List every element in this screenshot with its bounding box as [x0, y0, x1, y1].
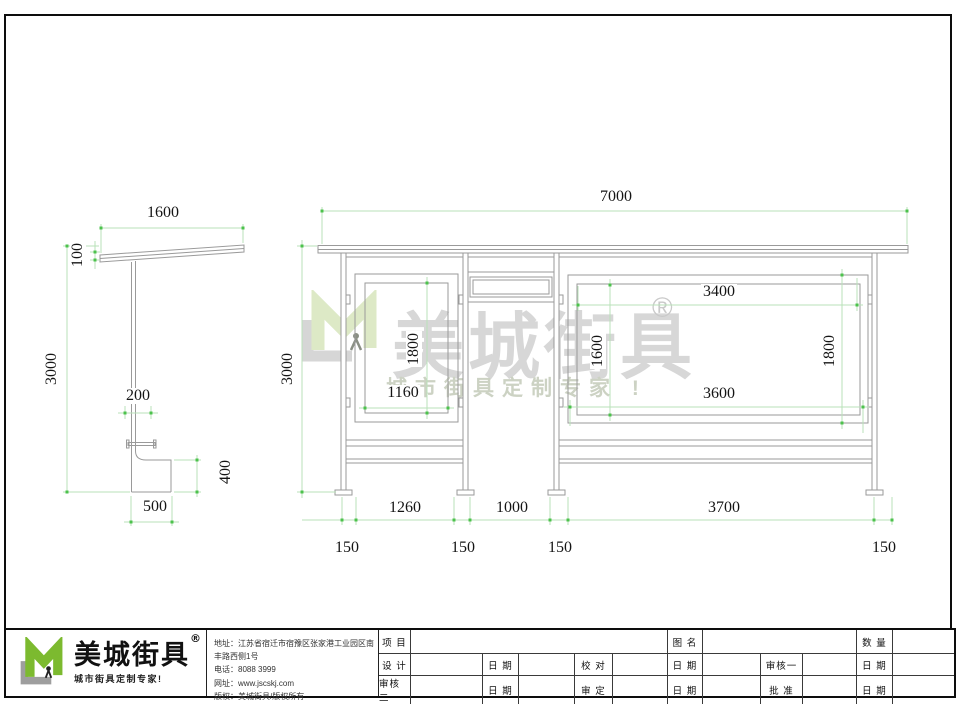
- label-verify: 审 定: [575, 676, 613, 704]
- label-date-3: 日 期: [857, 654, 893, 676]
- label-design: 设 计: [379, 654, 411, 676]
- title-block: 美城街具® 城市街具定制专家! 地址：江苏省宿迁市宿豫区张家港工业园区南丰路西侧…: [4, 628, 956, 698]
- logo-tagline: 城市街具定制专家!: [74, 672, 203, 685]
- logo-m-icon: [16, 637, 68, 689]
- label-date-2: 日 期: [668, 654, 703, 676]
- cell-date-2-value: [703, 654, 761, 676]
- dim-side-roof-thickness: 100: [70, 241, 86, 269]
- front-view-structure: [318, 246, 908, 496]
- company-website: 网址：www.jscskj.com: [214, 677, 378, 690]
- cad-linework: [0, 0, 960, 704]
- label-date-6: 日 期: [857, 676, 893, 704]
- label-drawing-name: 图 名: [668, 630, 703, 654]
- dim-side-height: 3000: [44, 351, 60, 387]
- company-logo: 美城街具® 城市街具定制专家!: [6, 630, 206, 696]
- dim-side-post-offset: 200: [124, 388, 152, 404]
- logo-registered-mark: ®: [190, 632, 203, 645]
- dim-side-roof-width: 1600: [145, 205, 181, 221]
- dim-side-bench-width: 500: [141, 499, 169, 515]
- cell-date-3-value: [893, 654, 954, 676]
- label-date-4: 日 期: [483, 676, 519, 704]
- dim-front-bay-right: 3700: [706, 500, 742, 516]
- dim-front-total-width: 7000: [598, 189, 634, 205]
- dim-front-board-inner-height: 1600: [590, 333, 606, 369]
- label-project: 项 目: [379, 630, 411, 654]
- label-approve: 批 准: [761, 676, 803, 704]
- dim-front-base-1: 150: [333, 540, 361, 556]
- drawing-sheet: 美城街具 ® 城市街具定制专家 !: [0, 0, 960, 704]
- cell-date-5-value: [703, 676, 761, 704]
- dim-front-base-3: 150: [546, 540, 574, 556]
- cell-date-4-value: [519, 676, 575, 704]
- dim-front-base-4: 150: [870, 540, 898, 556]
- side-view-structure: [100, 245, 244, 492]
- cell-approve-value: [803, 676, 857, 704]
- company-address: 地址：江苏省宿迁市宿豫区张家港工业园区南丰路西侧1号: [214, 637, 378, 663]
- cell-date-6-value: [893, 676, 954, 704]
- label-date-1: 日 期: [483, 654, 519, 676]
- dim-side-bench-height: 400: [218, 458, 234, 486]
- cell-reviewer2-value: [411, 676, 483, 704]
- label-reviewer2: 审核二: [379, 676, 411, 704]
- dim-front-left-panel-width: 1160: [385, 385, 420, 401]
- label-date-5: 日 期: [668, 676, 703, 704]
- cell-date-1-value: [519, 654, 575, 676]
- dim-front-bay-middle: 1000: [494, 500, 530, 516]
- cell-proofread-value: [613, 654, 668, 676]
- cell-project-value: [411, 630, 668, 654]
- company-copyright: 版权：美城街具/版权所有: [214, 690, 378, 703]
- dim-front-bay-left: 1260: [387, 500, 423, 516]
- cell-drawing-name-value: [703, 630, 857, 654]
- title-block-table: 项 目 图 名 数 量 设 计 日 期 校 对 日 期 审核一 日 期 审核二 …: [378, 630, 954, 696]
- cell-verify-value: [613, 676, 668, 704]
- dim-front-height: 3000: [280, 351, 296, 387]
- label-proofread: 校 对: [575, 654, 613, 676]
- label-quantity: 数 量: [857, 630, 893, 654]
- company-info: 地址：江苏省宿迁市宿豫区张家港工业园区南丰路西侧1号 电话：8088 3999 …: [206, 630, 378, 696]
- logo-brand: 美城街具®: [74, 641, 203, 671]
- label-reviewer1: 审核一: [761, 654, 803, 676]
- dim-front-board-inner-width: 3400: [701, 284, 737, 300]
- logo-brand-text: 美城街具: [74, 640, 190, 671]
- dim-front-board-outer-width: 3600: [701, 386, 737, 402]
- cell-reviewer1-value: [803, 654, 857, 676]
- company-phone: 电话：8088 3999: [214, 663, 378, 676]
- cell-design-value: [411, 654, 483, 676]
- dim-front-board-outer-height: 1800: [822, 333, 838, 369]
- dim-front-left-panel-height: 1800: [406, 331, 422, 367]
- cell-quantity-value: [893, 630, 954, 654]
- dim-front-base-2: 150: [449, 540, 477, 556]
